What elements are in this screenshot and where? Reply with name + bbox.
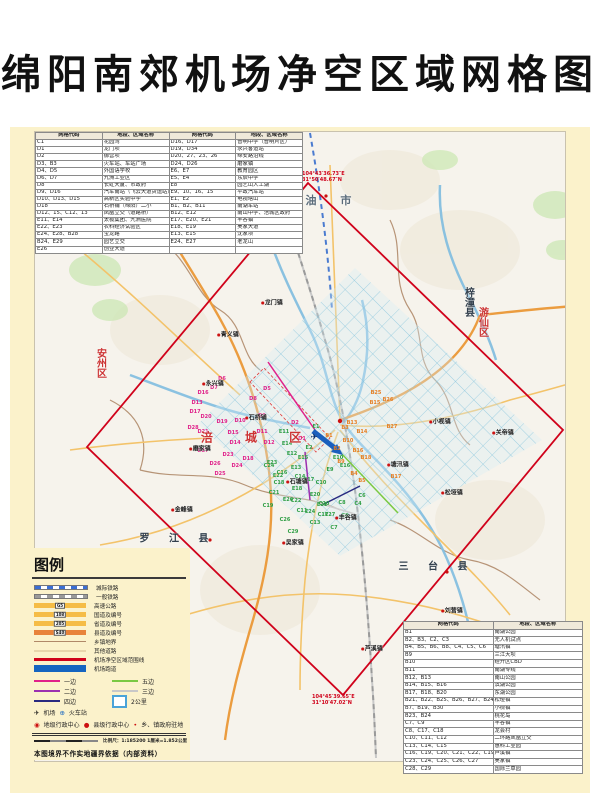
table-row: B10经开区CBD — [404, 659, 583, 667]
table-row: B17、B18、B20东湖公园 — [404, 690, 583, 698]
table-row: B11南湖专线 — [404, 667, 583, 675]
legend-item-label: 省道及编号 — [94, 620, 122, 628]
legend-item-label: 乡镇地界 — [94, 638, 116, 646]
pattern-leg-label: 四边 — [64, 697, 76, 706]
road-number-badge: G5 — [55, 602, 65, 609]
table-row: D4、D5外国语学校E6、E7教育园区 — [36, 168, 303, 175]
pattern-leg-item: 四边 — [34, 697, 112, 705]
col-header: 地段、区域名称 — [102, 133, 169, 140]
legend-item-label: 县道及编号 — [94, 629, 122, 637]
legend-items: 城际铁路一般铁路G5高速公路108国道及编号205省道及编号S40县道及编号乡镇… — [28, 583, 190, 673]
train-station-icon: ⊕ — [59, 710, 64, 716]
table-row: D10、D13、D15高新区实验中学E1、E2电视塔山 — [36, 196, 303, 203]
road-number-badge: 108 — [54, 611, 66, 618]
road-number-badge: 205 — [54, 620, 66, 627]
county-center-label: 县级行政中心 — [93, 720, 129, 729]
col-header: 地段、区域名称 — [493, 622, 583, 630]
table-row: D2御营坝D20、27、23、26绵安路沿线 — [36, 154, 303, 161]
legend-item-label: 一般铁路 — [96, 593, 118, 601]
legend-title: 图例 — [34, 554, 190, 575]
table-row: D18石桥铺（绵阳）二小B1、B2、B11南湖车站 — [36, 203, 303, 210]
town-center-icon: • — [133, 722, 137, 728]
scale-bar: 比例尺：1:185200 1厘米=1.852公里 — [34, 738, 190, 744]
legend-symbols-row-1: ✈ 机场 ⊕ 火车站 — [34, 708, 190, 717]
line-brown-swatch — [34, 641, 86, 643]
pattern-leg-label: 三边 — [142, 687, 154, 696]
leg-line-swatch — [34, 680, 60, 682]
road-orange-swatch: S40 — [34, 630, 86, 635]
legend-item: 一般铁路 — [34, 592, 190, 601]
table-row: B9三江大坝 — [404, 652, 583, 660]
pattern-leg-item: 二边 — [34, 687, 112, 695]
table-row: E22、E23农科经济试验区E18、E19吴家大道 — [36, 225, 303, 232]
legend-item-label: 机场跑道 — [94, 665, 116, 673]
road-yellow-swatch: 108 — [34, 612, 86, 617]
legend-item: 乡镇地界 — [34, 637, 190, 646]
legend-item: 108国道及编号 — [34, 610, 190, 619]
legend-item: 城际铁路 — [34, 583, 190, 592]
leg-line-swatch — [112, 690, 138, 692]
table-row: B24、E29园艺立交E24、E27老龙山 — [36, 239, 303, 246]
legend-divider — [32, 733, 186, 736]
table-row: B4、B5、B6、B8、C4、C5、C6塘汛镇 — [404, 644, 583, 652]
grid-code-table-top: 网格代码 地段、区域名称 网格代码 地段、区域名称 C1花园湾D16、D17普明… — [35, 132, 303, 254]
legend-panel: 图例 城际铁路一般铁路G5高速公路108国道及编号205省道及编号S40县道及编… — [28, 548, 190, 760]
legend-item-label: 高速公路 — [94, 602, 116, 610]
table-row: B21、B22、B25、B26、B27、B24、B29松垭镇 — [404, 697, 583, 705]
city-center-icon: ◉ — [34, 722, 40, 728]
legend-item: 其他道路 — [34, 646, 190, 655]
pattern-leg-label: 一边 — [64, 677, 76, 686]
pattern-leg-item: 2公里 — [112, 697, 190, 705]
pattern-leg-item: 一边 — [34, 677, 112, 685]
table-row: B23、B24桃花岛 — [404, 713, 583, 721]
legend-item-label: 机场净空区域范围线 — [94, 656, 144, 664]
legend-pattern-legs: 一边五边二边三边四边2公里 — [34, 677, 190, 705]
airplane-icon: ✈ — [34, 710, 39, 716]
county-center-icon: ● — [84, 722, 90, 728]
pattern-leg-label: 二边 — [64, 687, 76, 696]
table-row: E26创业大道 — [36, 246, 303, 253]
pattern-leg-label: 2公里 — [131, 697, 147, 706]
road-number-badge: S40 — [54, 629, 66, 636]
table-row: B12、B13南山公园 — [404, 675, 583, 683]
legend-rule — [32, 577, 186, 579]
table-row: C23、C24、C25、C26、C27吴家镇 — [404, 758, 583, 766]
bar-blue-swatch — [34, 665, 86, 672]
km-square-swatch — [112, 695, 127, 708]
page: 绵阳南郊机场净空区域网格图 — [0, 0, 600, 800]
table-row: B7、B19、B30小枧镇 — [404, 705, 583, 713]
line-tan-swatch — [34, 650, 86, 652]
legend-item: G5高速公路 — [34, 601, 190, 610]
city-center-label: 地级行政中心 — [44, 720, 80, 729]
legend-item: S40县道及编号 — [34, 628, 190, 637]
table-row: C10、C11、C12二环路凤凰立交 — [404, 735, 583, 743]
table-row: C8、C17、C18龙会村 — [404, 728, 583, 736]
rail-gray-swatch — [34, 594, 88, 599]
rail-blue-swatch — [34, 585, 88, 590]
map-sheet: D6D7D5D16D8D13D17D20D9D10D19D2D28D21D15D… — [10, 127, 590, 793]
pattern-leg-item: 五边 — [112, 677, 190, 685]
table-row: D8长虹大厦、市政府E8园艺山人工湖 — [36, 182, 303, 189]
leg-line-swatch — [34, 700, 60, 702]
disclaimer-note: 本图境界不作实地疆界依据（内部资料） — [34, 748, 190, 758]
table-row: D12、15、C12、13凤凰立交（道路桥）B12、E12南山中学、涪城区政府 — [36, 211, 303, 218]
col-header: 地段、区域名称 — [236, 133, 303, 140]
page-title: 绵阳南郊机场净空区域网格图 — [0, 42, 600, 100]
scale-bar-graphic — [34, 740, 98, 743]
table-row: C13、C14、C15惠科工业园 — [404, 743, 583, 751]
road-yellow-swatch: 205 — [34, 621, 86, 626]
table-row: D9、D16汽车南站（飞云大道货运站）E9、10、16、15平政汽车站 — [36, 189, 303, 196]
table-row: B14、B15、B16滨湖公园 — [404, 682, 583, 690]
col-header: 网格代码 — [36, 133, 103, 140]
table-row: D6、D7九洲工业区E5、E4东辰中学 — [36, 175, 303, 182]
table-row: C28、C29国际兰草园 — [404, 766, 583, 774]
table-row: C7、C9丰谷镇 — [404, 720, 583, 728]
table-row: D3、B3火车站、车站广场D24、D26磨家镇 — [36, 161, 303, 168]
road-yellow-swatch: G5 — [34, 603, 86, 608]
pattern-leg-label: 五边 — [142, 677, 154, 686]
col-header: 网格代码 — [169, 133, 236, 140]
table-row: E24、E28、B28宝龙路E13、E15沈家坝 — [36, 232, 303, 239]
scale-text: 比例尺：1:185200 1厘米=1.852公里 — [103, 738, 187, 744]
col-header: 网格代码 — [404, 622, 494, 630]
table-row: C1花园湾D16、D17普明中学（普明片区） — [36, 140, 303, 147]
legend-item: 机场净空区域范围线 — [34, 655, 190, 664]
legend-item: 机场跑道 — [34, 664, 190, 673]
legend-item-label: 其他道路 — [94, 647, 116, 655]
legend-symbols-row-2: ◉ 地级行政中心 ● 县级行政中心 • 乡、镇政府驻地 — [34, 720, 190, 729]
table-row: D1龙门坝D19、D34永兴客运站 — [36, 147, 303, 154]
legend-item-label: 国道及编号 — [94, 611, 122, 619]
table-row: B1南湖公园 — [404, 629, 583, 637]
table-row: E11、E14太极集团、九洲医院E17、E20、E21丰谷镇 — [36, 218, 303, 225]
airport-label: 机场 — [43, 708, 55, 717]
table-row: C16、C19、C20、C21、C22、C19芦溪镇 — [404, 751, 583, 759]
leg-line-swatch — [112, 680, 138, 682]
legend-item: 205省道及编号 — [34, 619, 190, 628]
leg-line-swatch — [34, 690, 60, 692]
table-row: B2、B3、C2、C3无人机试点 — [404, 637, 583, 645]
line-red-swatch — [34, 658, 86, 661]
train-station-label: 火车站 — [69, 708, 87, 717]
legend-item-label: 城际铁路 — [96, 584, 118, 592]
grid-code-table-bottom: 网格代码 地段、区域名称 B1南湖公园B2、B3、C2、C3无人机试点B4、B5… — [403, 621, 583, 774]
town-center-label: 乡、镇政府驻地 — [141, 720, 183, 729]
